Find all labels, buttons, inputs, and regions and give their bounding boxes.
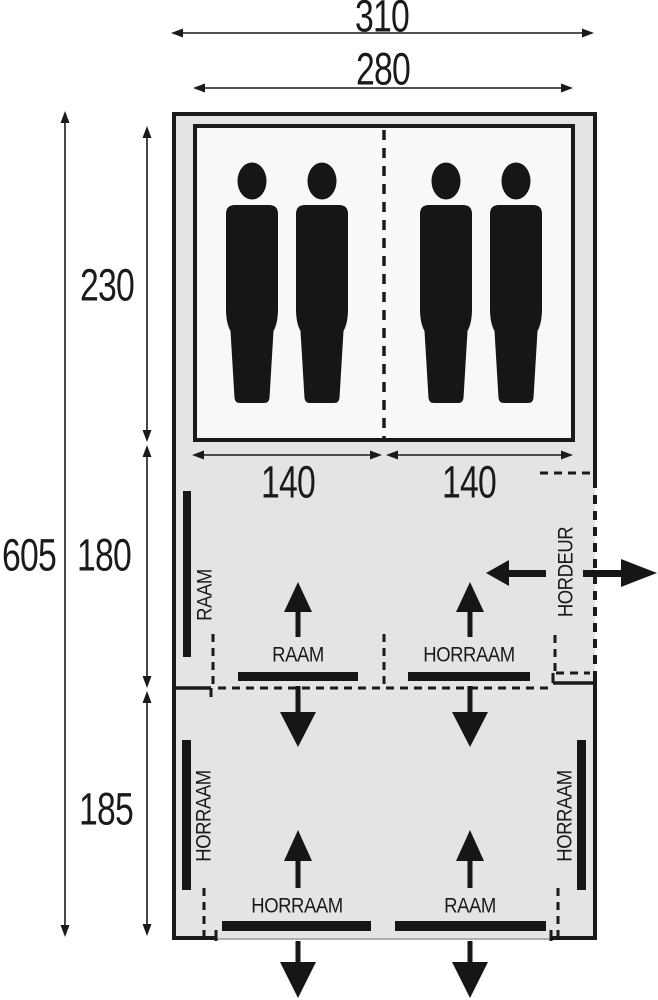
arrowhead xyxy=(143,691,152,703)
window-bar-divider-left xyxy=(238,672,358,681)
arrowhead xyxy=(143,126,152,138)
dim-width-outer: 310 xyxy=(355,0,409,39)
window-bar-bottom-right xyxy=(395,921,546,931)
label-screen-door: HORDEUR xyxy=(556,527,577,617)
dim-length-sleeping: 230 xyxy=(80,263,134,308)
dim-length-middle: 180 xyxy=(77,533,131,578)
arrowhead xyxy=(171,29,183,38)
arrowhead xyxy=(582,29,594,38)
ventilation-arrow-down-icon xyxy=(452,941,488,998)
dim-bed-width-left: 140 xyxy=(261,460,315,505)
dim-bed-width-right: 140 xyxy=(442,460,496,505)
label-front-bottom-right-window: RAAM xyxy=(444,896,496,917)
label-divider-screen-window: HORRAAM xyxy=(423,645,514,666)
arrowhead xyxy=(143,924,152,936)
label-front-bottom-left-window: HORRAAM xyxy=(251,896,342,917)
window-bar-divider-right xyxy=(408,672,530,681)
window-bar-bottom-left xyxy=(222,921,371,931)
dim-width-inner: 280 xyxy=(356,47,410,92)
label-side-window: RAAM xyxy=(195,569,216,621)
arrowhead xyxy=(561,84,573,93)
arrowhead xyxy=(143,430,152,442)
window-bar-front-left xyxy=(182,740,191,890)
label-front-left-side-window: HORRAAM xyxy=(194,770,215,861)
label-divider-window: RAAM xyxy=(272,645,324,666)
arrowhead xyxy=(143,676,152,688)
arrowhead xyxy=(193,84,205,93)
arrowhead xyxy=(61,111,70,123)
tent-floorplan: 310 280 605 230 180 185 140 140 RAAM RAA… xyxy=(0,0,658,1000)
window-bar-front-right xyxy=(577,740,586,890)
dim-length-total: 605 xyxy=(2,533,56,578)
label-front-right-side-window: HORRAAM xyxy=(555,770,576,861)
ventilation-arrow-down-icon xyxy=(280,941,316,998)
window-bar-side-left xyxy=(183,491,191,657)
dim-length-front: 185 xyxy=(79,787,133,832)
arrowhead xyxy=(61,925,70,937)
arrowhead xyxy=(143,445,152,457)
